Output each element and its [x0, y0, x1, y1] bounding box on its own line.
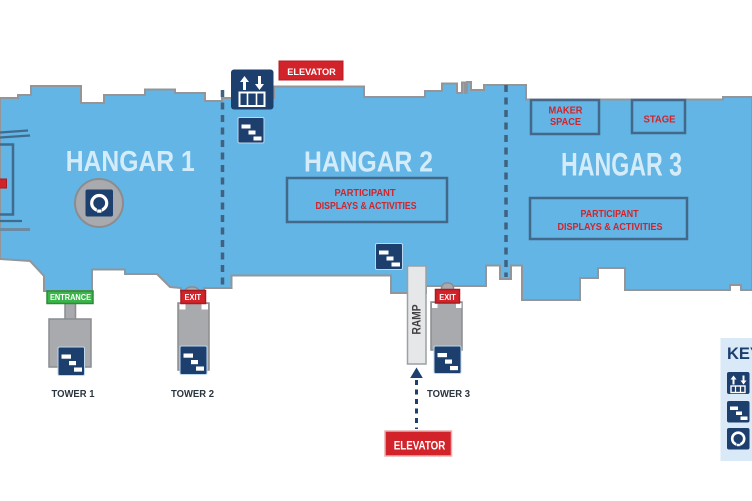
- svg-text:SPACE: SPACE: [550, 117, 581, 128]
- svg-text:MAKER: MAKER: [549, 106, 584, 117]
- svg-text:ELEVATOR: ELEVATOR: [287, 67, 336, 78]
- svg-text:HANGAR 3: HANGAR 3: [561, 147, 682, 183]
- svg-text:DISPLAYS & ACTIVITIES: DISPLAYS & ACTIVITIES: [558, 221, 663, 233]
- svg-text:KEY: KEY: [727, 345, 752, 363]
- svg-text:DISPLAYS & ACTIVITIES: DISPLAYS & ACTIVITIES: [316, 200, 417, 212]
- svg-text:PARTICIPANT: PARTICIPANT: [581, 208, 639, 220]
- svg-text:EXIT: EXIT: [185, 292, 202, 302]
- svg-text:ENTRANCE: ENTRANCE: [50, 292, 91, 302]
- svg-text:EXIT: EXIT: [439, 292, 456, 302]
- svg-text:TOWER 3: TOWER 3: [427, 388, 470, 400]
- svg-text:TOWER 1: TOWER 1: [52, 388, 95, 400]
- svg-text:RAMP: RAMP: [412, 304, 424, 334]
- svg-text:PARTICIPANT: PARTICIPANT: [335, 187, 397, 199]
- svg-text:HANGAR 1: HANGAR 1: [66, 146, 195, 178]
- svg-text:HANGAR 2: HANGAR 2: [304, 147, 433, 179]
- svg-text:STAGE: STAGE: [644, 115, 676, 126]
- svg-text:TOWER 2: TOWER 2: [171, 388, 214, 400]
- svg-text:ELEVATOR: ELEVATOR: [394, 441, 446, 453]
